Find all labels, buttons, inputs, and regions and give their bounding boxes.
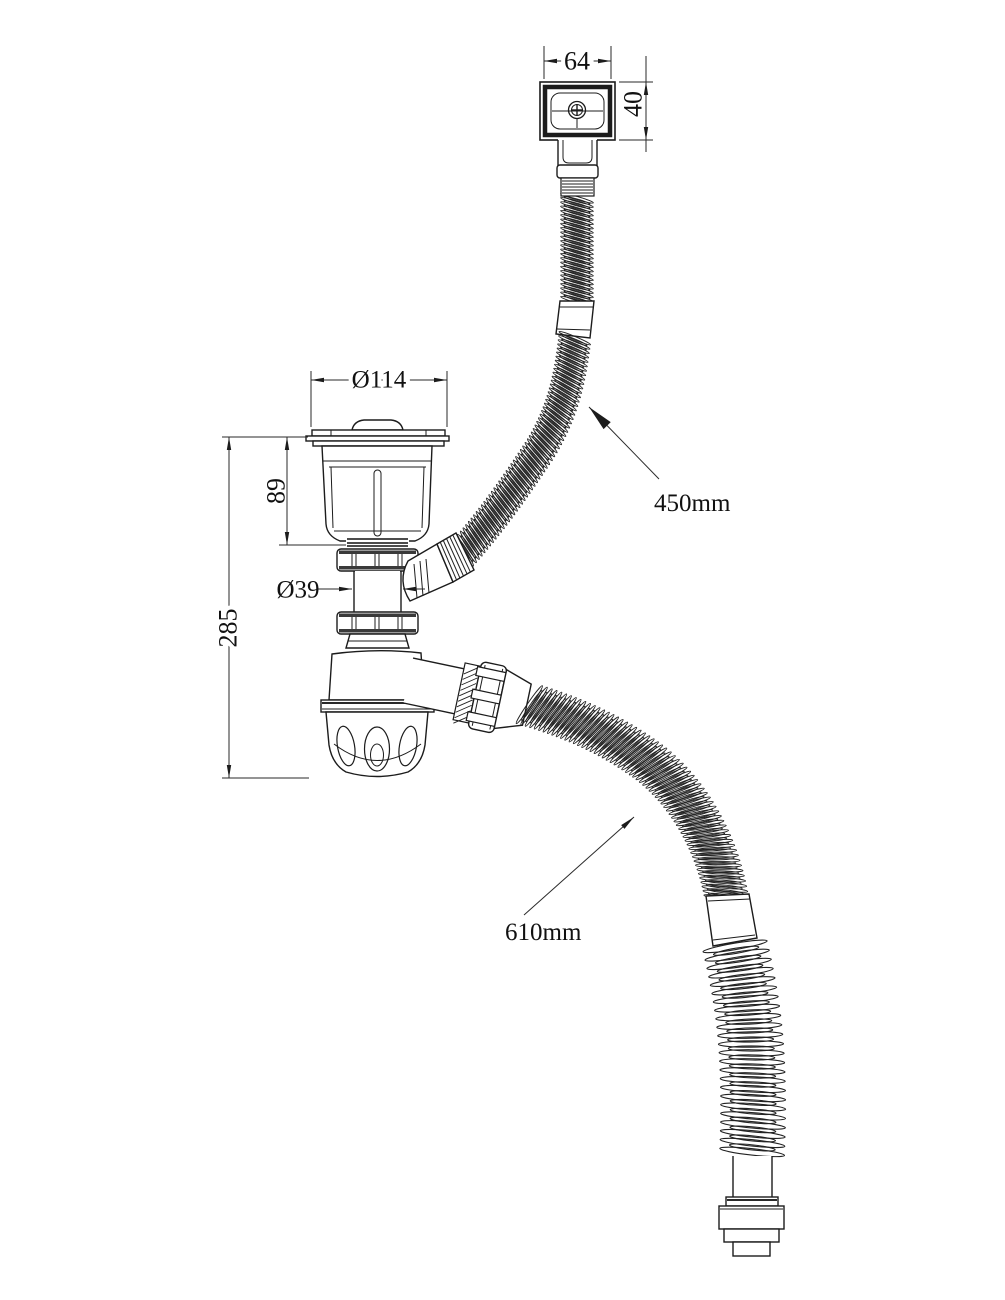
waste-hose-connector-band <box>706 894 757 946</box>
paper-background <box>0 0 1005 1300</box>
strainer-flange-top <box>312 430 445 436</box>
label-waste-hose-length: 610mm <box>505 919 582 946</box>
dim-overall-height: 285 <box>214 609 243 648</box>
dim-overflow-width: 64 <box>564 47 590 76</box>
label-overflow-hose-length: 450mm <box>654 490 731 517</box>
locknut-lower <box>337 612 418 634</box>
strainer-flange-bottom <box>313 441 444 446</box>
dim-tailpipe-diameter: Ø39 <box>276 577 319 604</box>
strainer-cup <box>322 446 432 541</box>
strainer-thread-section <box>346 537 409 550</box>
strainer-flange-mid <box>306 436 449 441</box>
technical-drawing-sink-drain: 64 40 Ø114 89 285 Ø39 450mm 610mm <box>0 0 1005 1300</box>
drawing-canvas: 64 40 Ø114 89 285 Ø39 450mm 610mm <box>0 0 1005 1300</box>
overflow-hose-thread-band <box>561 178 594 196</box>
overflow-hose-collar <box>557 165 598 178</box>
dim-overflow-height: 40 <box>619 91 648 117</box>
dim-strainer-diameter: Ø114 <box>352 367 407 394</box>
tailpipe <box>354 571 401 612</box>
overflow-neck <box>558 139 597 167</box>
strainer-knob <box>352 420 403 430</box>
dim-strainer-height: 89 <box>262 478 291 504</box>
overflow-hose-connector-band <box>556 301 594 338</box>
